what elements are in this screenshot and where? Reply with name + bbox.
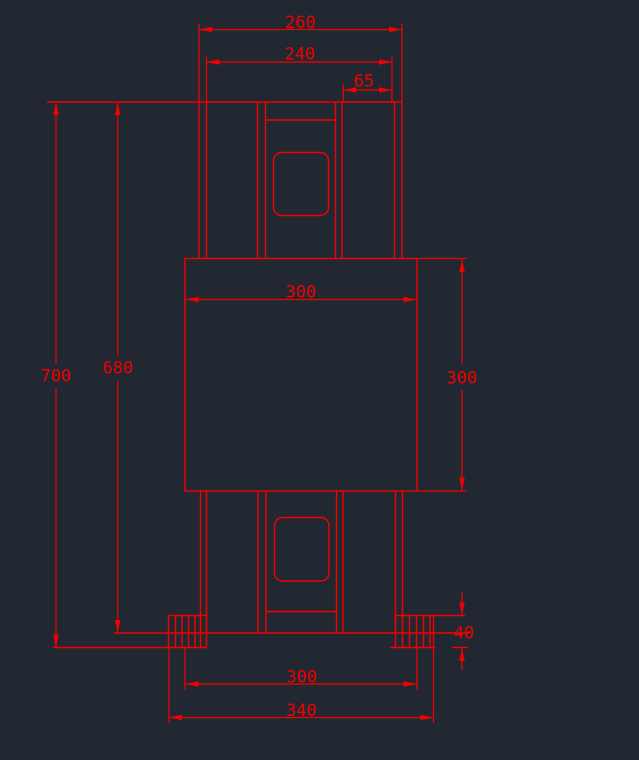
arrowhead-right [379, 87, 392, 92]
arrowhead-left [199, 27, 212, 32]
dimension-40[interactable]: 40 [454, 592, 474, 671]
arrowhead-bottom [53, 635, 58, 648]
arrowhead-right [404, 297, 417, 302]
arrowhead-left [186, 297, 199, 302]
dim-label-65[interactable]: 65 [354, 72, 374, 92]
dimension-680[interactable]: 680 [103, 102, 134, 633]
dimension-65[interactable]: 65 [343, 72, 392, 103]
arrowhead-down [459, 603, 464, 616]
dim-label-40[interactable]: 40 [454, 624, 474, 644]
cad-canvas[interactable]: 260 240 65 300 300 700 680 [0, 0, 639, 760]
cad-viewport[interactable]: 260 240 65 300 300 700 680 [0, 0, 639, 760]
arrowhead-bottom [459, 478, 464, 491]
dim-label-300-base[interactable]: 300 [287, 668, 318, 688]
arrowhead-right [421, 715, 434, 720]
dim-label-700[interactable]: 700 [41, 367, 72, 387]
arrowhead-bottom [115, 620, 120, 633]
top-opening[interactable] [274, 153, 329, 216]
dim-label-240[interactable]: 240 [285, 45, 316, 65]
bottom-flange-assembly[interactable] [53, 491, 470, 648]
arrowhead-top [53, 102, 58, 115]
dim-label-300-width[interactable]: 300 [286, 283, 317, 303]
top-flange-assembly[interactable] [47, 102, 402, 259]
dimension-300-body-width[interactable]: 300 [185, 283, 417, 303]
dimension-300-body-height[interactable]: 300 [417, 259, 477, 492]
arrowhead-top [459, 259, 464, 272]
dim-label-340[interactable]: 340 [286, 701, 317, 721]
arrowhead-left [186, 681, 199, 686]
arrowhead-up [459, 648, 464, 661]
dimension-700[interactable]: 700 [41, 102, 72, 648]
arrowhead-left [207, 59, 220, 64]
arrowhead-right [379, 59, 392, 64]
arrowhead-right [389, 27, 402, 32]
top-structure-walls[interactable] [199, 102, 402, 259]
arrowhead-right [404, 681, 417, 686]
arrowhead-top [115, 102, 120, 115]
dimension-300-base[interactable]: 300 [185, 648, 417, 690]
left-foot-pad[interactable] [53, 616, 207, 648]
arrowhead-left [169, 715, 182, 720]
dim-label-680[interactable]: 680 [103, 359, 134, 379]
dim-label-300-height[interactable]: 300 [447, 369, 478, 389]
dim-label-260[interactable]: 260 [285, 13, 316, 33]
bottom-opening[interactable] [275, 518, 330, 582]
